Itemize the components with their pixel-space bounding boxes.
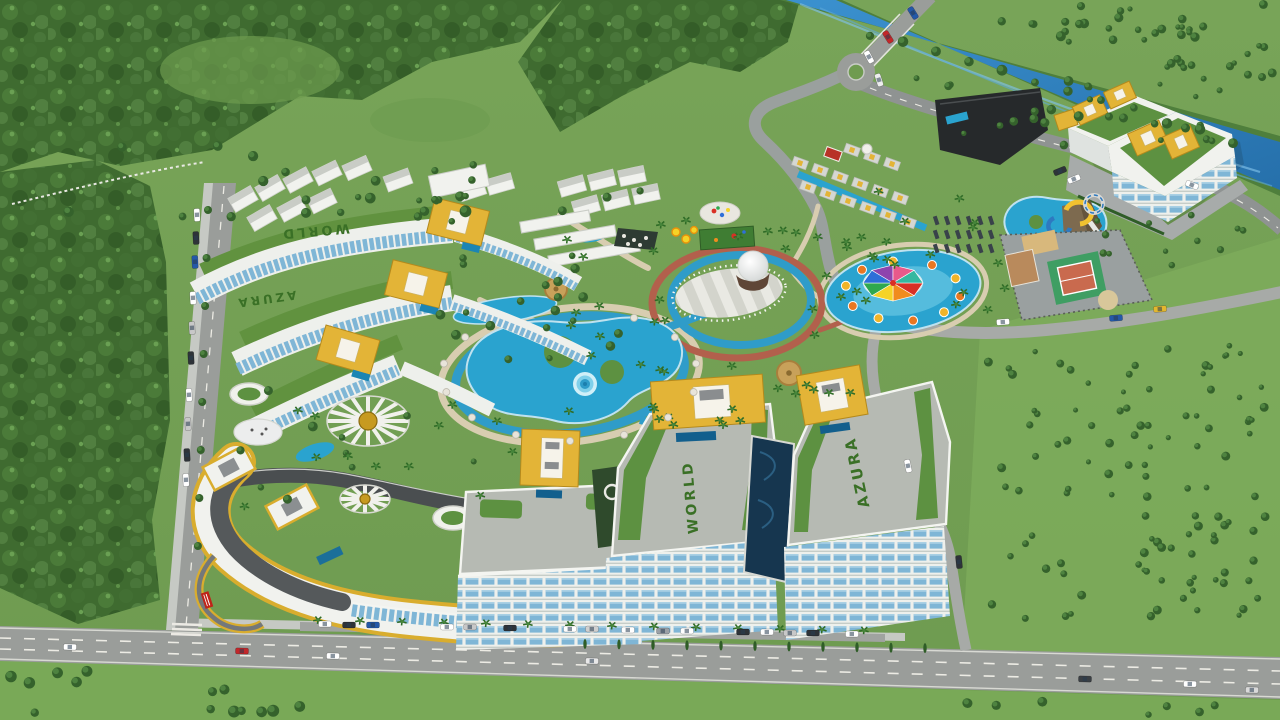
car — [193, 231, 200, 244]
tree — [1194, 443, 1200, 449]
tree — [1057, 559, 1065, 567]
tree — [256, 707, 267, 718]
tree — [468, 176, 476, 184]
tree — [1032, 349, 1037, 354]
tree — [1186, 579, 1194, 587]
tree — [543, 324, 550, 331]
tree — [1007, 553, 1013, 559]
tree — [1195, 708, 1204, 717]
tree — [1169, 262, 1176, 269]
tree — [1119, 114, 1128, 123]
tree — [1204, 485, 1210, 491]
tree — [547, 355, 553, 361]
cypress-tree — [821, 642, 824, 652]
parasol — [690, 389, 697, 396]
tree — [431, 167, 438, 174]
car — [1078, 676, 1091, 682]
tree — [1199, 23, 1207, 31]
tree — [603, 193, 612, 202]
sun-canopy-small — [340, 485, 390, 513]
car — [737, 629, 750, 635]
car — [807, 630, 820, 636]
tree — [1123, 405, 1130, 412]
tree — [52, 667, 63, 678]
tree — [200, 350, 208, 358]
tree — [1254, 595, 1261, 602]
tree — [1247, 431, 1253, 437]
tree — [1235, 226, 1241, 232]
meadow-patch — [370, 98, 490, 142]
car — [343, 622, 356, 628]
tree — [1117, 407, 1124, 414]
tree — [1153, 606, 1162, 615]
tree — [1201, 371, 1206, 376]
tree — [206, 705, 214, 713]
tower1-roof-lawn — [480, 499, 523, 518]
tree — [1225, 519, 1231, 525]
tree — [179, 213, 187, 221]
tree — [470, 161, 477, 168]
tree — [1157, 25, 1166, 34]
parasol — [671, 334, 678, 341]
tree — [1244, 71, 1252, 79]
tree — [1040, 118, 1049, 127]
tree — [1166, 435, 1171, 440]
tree — [1179, 24, 1185, 30]
play-building-roof — [699, 226, 754, 250]
parasol — [621, 431, 628, 438]
tree — [1220, 579, 1228, 587]
tree — [201, 302, 209, 310]
tree — [302, 195, 311, 204]
cypress-tree — [753, 641, 756, 651]
tree — [998, 17, 1006, 25]
tree — [1105, 113, 1113, 121]
tree — [294, 701, 305, 712]
tree — [1066, 39, 1072, 45]
tree — [339, 434, 346, 441]
tree — [416, 198, 422, 204]
cypress-tree — [685, 640, 688, 650]
tree — [1042, 565, 1050, 573]
car — [504, 625, 517, 631]
tree — [542, 281, 550, 289]
tree — [914, 75, 920, 81]
car — [183, 473, 190, 486]
tree — [486, 321, 496, 331]
parasol — [665, 414, 672, 421]
tree — [1131, 431, 1139, 439]
tree — [1142, 473, 1149, 480]
tree — [1188, 212, 1195, 219]
tree — [866, 32, 874, 40]
tree — [554, 293, 562, 301]
car — [190, 291, 197, 304]
tree — [198, 398, 206, 406]
tree — [82, 666, 93, 677]
cypress-tree — [651, 640, 654, 650]
tree — [283, 495, 292, 504]
tree — [1211, 701, 1219, 709]
tree — [1249, 527, 1257, 535]
tree — [1221, 568, 1229, 576]
tree — [1088, 422, 1095, 429]
parasol — [631, 314, 638, 321]
tree — [1132, 362, 1139, 369]
tree — [606, 341, 616, 351]
tree — [1201, 76, 1207, 82]
tree — [1237, 613, 1242, 618]
tree — [1143, 492, 1152, 501]
tree — [195, 494, 203, 502]
tree — [1149, 536, 1155, 542]
tree — [1177, 30, 1186, 39]
tree — [1178, 15, 1187, 24]
tree — [1073, 408, 1078, 413]
tree — [471, 458, 477, 464]
tree — [1074, 111, 1084, 121]
cypress-tree — [855, 642, 858, 652]
car — [186, 388, 193, 401]
car — [564, 626, 577, 632]
mushroom-umbrella — [909, 316, 918, 325]
car — [996, 319, 1009, 326]
cypress-tree — [719, 641, 722, 651]
tree — [1094, 218, 1100, 224]
tree — [988, 600, 996, 608]
tree — [1037, 697, 1047, 707]
tree — [1239, 605, 1247, 613]
tree — [944, 82, 952, 90]
mushroom-umbrella — [874, 314, 883, 323]
tree — [258, 484, 265, 491]
tree — [898, 36, 909, 47]
cypress-tree — [889, 643, 892, 653]
tree — [337, 209, 344, 216]
flower-pad — [682, 235, 690, 243]
tree — [1084, 83, 1092, 91]
tree — [1077, 591, 1086, 600]
tree — [1205, 424, 1213, 432]
tree — [504, 355, 512, 363]
tree — [1077, 2, 1085, 10]
tree — [963, 698, 973, 708]
roundabout-island — [848, 64, 864, 80]
car — [1153, 306, 1166, 313]
tree — [1249, 556, 1257, 564]
tree — [1097, 96, 1105, 104]
tree — [1104, 469, 1113, 478]
tree — [1135, 561, 1142, 568]
mushroom-umbrella — [951, 274, 960, 283]
car — [1245, 687, 1258, 693]
tree — [227, 212, 236, 221]
tree — [992, 701, 1001, 710]
tree — [1159, 577, 1166, 584]
tree — [1060, 141, 1069, 150]
car — [319, 621, 332, 627]
tree — [1190, 32, 1199, 41]
tree — [1109, 36, 1118, 45]
tree — [1087, 96, 1093, 102]
tree — [267, 705, 279, 717]
parasol — [443, 389, 450, 396]
car — [586, 626, 599, 632]
tree — [308, 422, 318, 432]
tree — [1164, 345, 1171, 352]
tree — [1114, 13, 1123, 22]
tree — [371, 176, 381, 186]
tree — [1162, 118, 1172, 128]
mushroom-umbrella — [940, 308, 949, 317]
car — [784, 630, 797, 636]
parasol — [567, 438, 574, 445]
tree — [258, 176, 268, 186]
mushroom-umbrella — [928, 261, 937, 270]
tree — [1194, 607, 1200, 613]
round-gazebo — [230, 383, 268, 405]
parasol — [512, 431, 519, 438]
tree — [349, 464, 356, 471]
tree — [1194, 522, 1203, 531]
tree — [460, 205, 472, 217]
tree — [1211, 532, 1217, 538]
tree — [558, 206, 567, 215]
tree — [1148, 444, 1153, 449]
tree — [1063, 436, 1071, 444]
cypress-tree — [787, 641, 790, 651]
tree — [1054, 441, 1061, 448]
tree — [1256, 43, 1262, 49]
tree — [1249, 417, 1255, 423]
car — [585, 658, 598, 664]
car — [367, 622, 380, 628]
tree — [997, 65, 1008, 76]
tree — [1142, 462, 1148, 468]
tree — [1214, 513, 1222, 521]
tree — [1145, 711, 1151, 717]
forest-left-strip — [0, 160, 170, 624]
event-tent — [862, 144, 872, 154]
tree — [24, 677, 35, 688]
pool-island — [600, 360, 624, 384]
tree — [1163, 249, 1168, 254]
tree — [1130, 104, 1137, 111]
tree — [1100, 249, 1107, 256]
mushroom-umbrella — [857, 265, 866, 274]
tree — [1062, 612, 1070, 620]
tree — [1061, 18, 1069, 26]
flower-pad — [691, 227, 698, 234]
tree — [1106, 251, 1112, 257]
mushroom-umbrella — [848, 302, 857, 311]
tree — [1029, 532, 1036, 539]
tree — [1217, 87, 1223, 93]
tree — [1086, 380, 1092, 386]
tree — [1157, 543, 1166, 552]
tree — [1194, 413, 1200, 419]
car — [184, 448, 191, 461]
tree — [1147, 612, 1155, 620]
tree — [403, 412, 411, 420]
tree — [436, 310, 446, 320]
tree — [431, 196, 439, 204]
tree — [1209, 138, 1216, 145]
car — [192, 255, 199, 268]
tree — [1237, 395, 1243, 401]
tree — [1192, 512, 1199, 519]
tree — [414, 212, 422, 220]
tree — [961, 131, 966, 136]
tree — [1188, 61, 1196, 69]
tree — [1056, 31, 1066, 41]
tree — [931, 46, 941, 56]
tree — [1086, 459, 1091, 464]
sand-mound — [1098, 290, 1118, 310]
tree — [1032, 453, 1039, 460]
tree — [1186, 531, 1192, 537]
tree — [1245, 51, 1251, 57]
tree — [237, 707, 245, 715]
tree — [551, 306, 561, 316]
tree — [1217, 246, 1224, 253]
tree — [459, 254, 467, 262]
parasol — [440, 360, 447, 367]
tree — [1258, 73, 1266, 81]
tree — [1245, 577, 1252, 584]
tree — [1126, 371, 1133, 378]
tree — [1259, 384, 1264, 389]
tree — [1188, 550, 1195, 557]
car — [194, 208, 201, 221]
car — [1109, 315, 1122, 322]
tree — [1105, 439, 1114, 448]
car — [185, 417, 192, 430]
tree — [1026, 421, 1033, 428]
parasol — [468, 414, 475, 421]
tree — [219, 685, 229, 695]
tree — [1121, 389, 1126, 394]
stage-dome — [738, 251, 768, 281]
car — [188, 351, 195, 364]
tree — [1032, 408, 1038, 414]
tree — [1056, 360, 1064, 368]
tree — [1207, 364, 1213, 370]
slide-pool-island — [1029, 215, 1043, 229]
tree — [1029, 20, 1036, 27]
tree — [1190, 587, 1196, 593]
tree — [1031, 79, 1039, 87]
tree — [1146, 386, 1153, 393]
tree — [1193, 94, 1198, 99]
tree — [1067, 366, 1075, 374]
car — [441, 624, 454, 630]
tree — [1221, 452, 1230, 461]
tree — [355, 194, 361, 200]
tree — [517, 297, 525, 305]
tree — [117, 142, 126, 151]
tree — [213, 141, 223, 151]
car — [235, 648, 248, 654]
tree — [1142, 512, 1150, 520]
tree — [1075, 20, 1083, 28]
tree — [5, 671, 17, 683]
tree — [197, 446, 205, 454]
car — [846, 631, 859, 637]
tree — [64, 207, 74, 217]
tree — [1022, 615, 1029, 622]
tree — [463, 309, 470, 316]
tree — [1065, 486, 1072, 493]
tree — [1194, 238, 1201, 245]
tree — [964, 57, 973, 66]
tree — [1008, 370, 1017, 379]
tree — [1227, 343, 1233, 349]
tree — [203, 254, 211, 262]
tree — [1180, 64, 1187, 71]
meadow-patch — [160, 36, 340, 104]
tree — [1238, 351, 1243, 356]
tree — [1140, 548, 1149, 557]
tree — [1136, 421, 1145, 430]
tree — [1102, 231, 1109, 238]
tree — [570, 264, 579, 273]
tree — [31, 708, 39, 716]
tree — [1109, 492, 1115, 498]
cypress-tree — [617, 639, 620, 649]
tree — [1060, 570, 1067, 577]
cypress-tree — [923, 643, 926, 653]
tree — [984, 358, 993, 367]
tree — [1047, 105, 1057, 115]
splash-canopies — [863, 265, 923, 301]
tree — [1259, 0, 1268, 9]
tree — [194, 542, 202, 550]
tree — [569, 252, 576, 259]
tree — [1063, 87, 1072, 96]
cypress-tree — [583, 639, 586, 649]
tree — [1207, 386, 1215, 394]
tree — [1168, 544, 1175, 551]
tree — [578, 292, 588, 302]
tree — [997, 463, 1006, 472]
tower1-pool — [536, 490, 562, 499]
resort-aerial-render: WORLD AZURA WORLD AZURA — [0, 0, 1280, 720]
tree — [1015, 487, 1023, 495]
tree — [1163, 702, 1171, 710]
tree — [1260, 403, 1269, 412]
tree — [1184, 485, 1191, 492]
tree — [1251, 493, 1259, 501]
car — [326, 653, 339, 659]
tree — [451, 330, 461, 340]
tree — [1158, 137, 1164, 143]
tree — [1002, 484, 1009, 491]
tree — [1143, 568, 1150, 575]
tree — [1195, 124, 1205, 134]
tree — [1127, 6, 1132, 11]
pool-deck-disc — [234, 419, 282, 445]
flower-pad — [672, 228, 680, 236]
tree — [1181, 124, 1190, 133]
tree — [1151, 120, 1159, 128]
tree — [570, 317, 576, 323]
tree — [1224, 352, 1230, 358]
tree — [997, 122, 1004, 129]
tree — [636, 187, 643, 194]
tree — [1125, 461, 1133, 469]
tree — [71, 677, 82, 688]
